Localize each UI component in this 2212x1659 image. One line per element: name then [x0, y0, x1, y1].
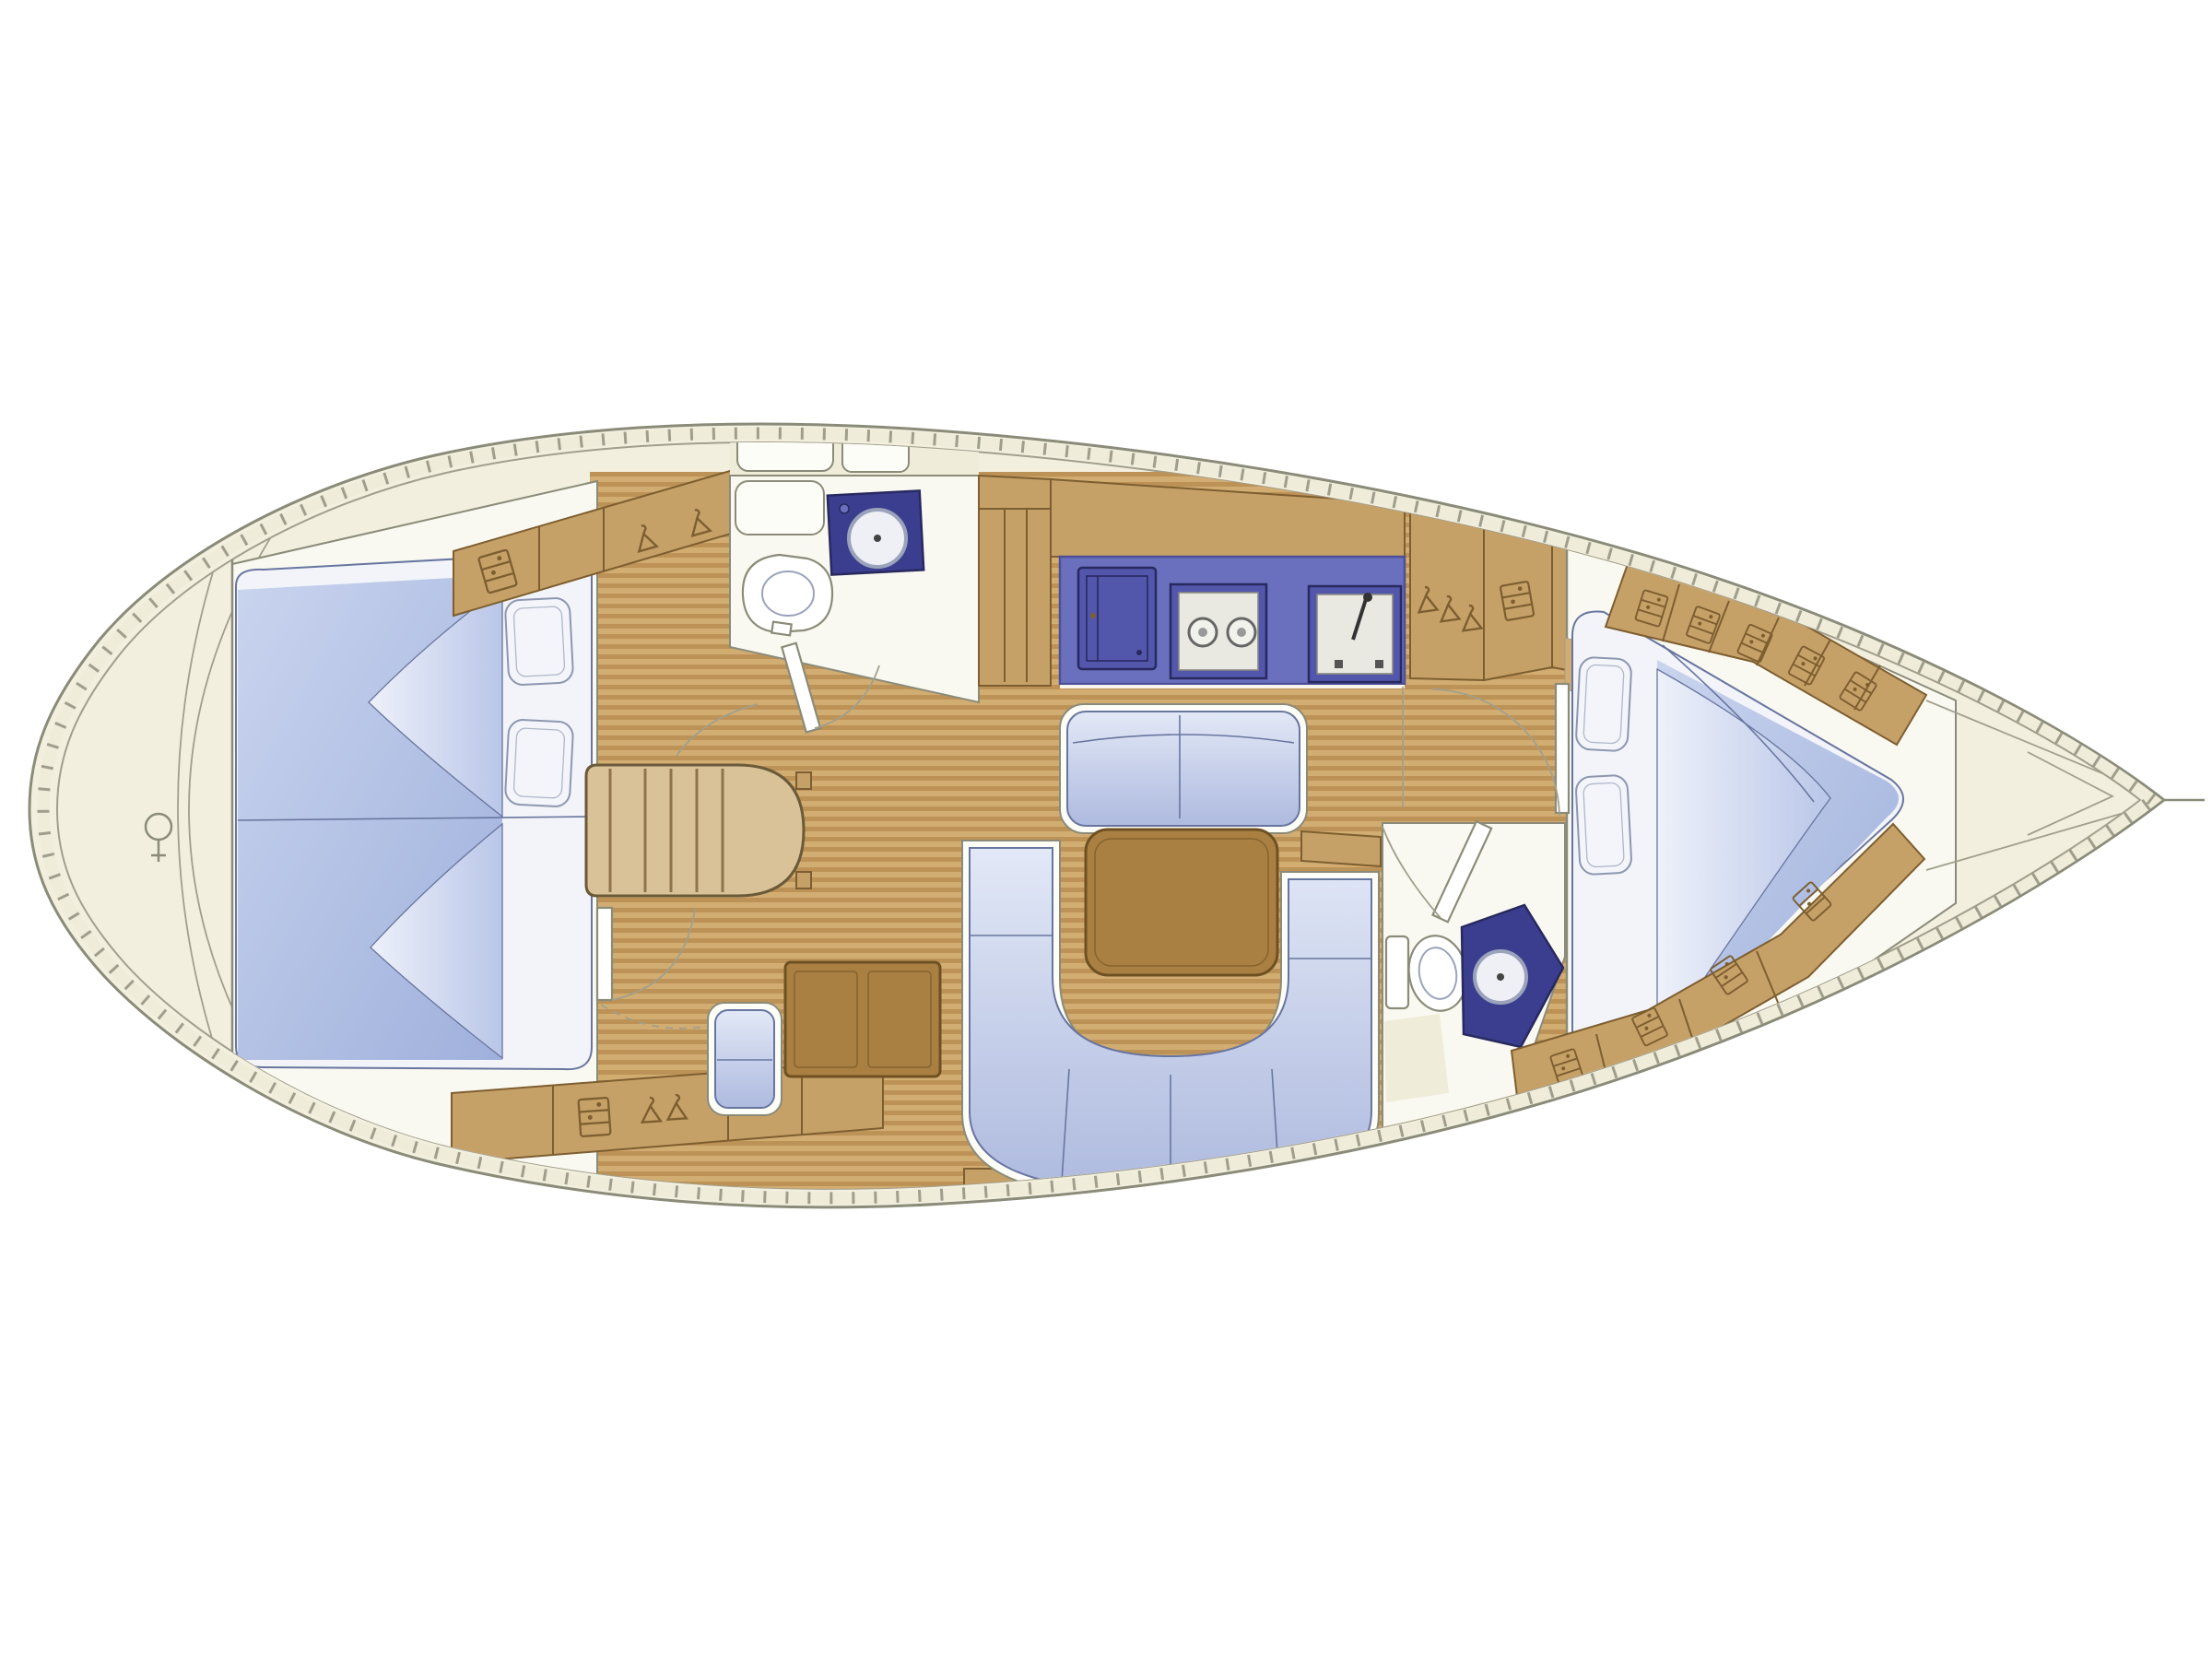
faucet-icon [840, 504, 849, 513]
pillow [505, 719, 574, 807]
toilet [743, 555, 832, 632]
head-step [1384, 1014, 1449, 1102]
aft-cabin-door-leaf [597, 908, 612, 1000]
wet-locker [1410, 505, 1484, 680]
pillow [1575, 775, 1631, 876]
stair-rail-tab [796, 872, 811, 888]
midship-locker-block [979, 476, 1051, 686]
refrigerator [1078, 568, 1156, 669]
yacht-floor-plan [0, 0, 2212, 1659]
washbasin-drain [1497, 973, 1504, 981]
interior [146, 406, 2162, 1226]
pillow [1575, 657, 1631, 752]
shower-bench [735, 481, 824, 535]
sink-drain [1335, 660, 1343, 668]
floor-plan-svg [0, 0, 2212, 1659]
sink-drain [1375, 660, 1383, 668]
navigator-seat-cushion [715, 1010, 774, 1108]
stair-rail-tab [796, 772, 811, 789]
pillow [505, 597, 574, 686]
fridge-latch [1136, 650, 1142, 655]
fridge-handle [1090, 613, 1096, 618]
toilet-tank [1386, 936, 1408, 1008]
chart-table [785, 962, 940, 1077]
toilet-flush [771, 622, 791, 636]
stairs-fill [588, 767, 724, 894]
corner-shelf [1301, 831, 1381, 866]
salon-table [1086, 829, 1277, 975]
straight-settee-cushion [1067, 712, 1300, 826]
washbasin-drain [874, 535, 881, 542]
